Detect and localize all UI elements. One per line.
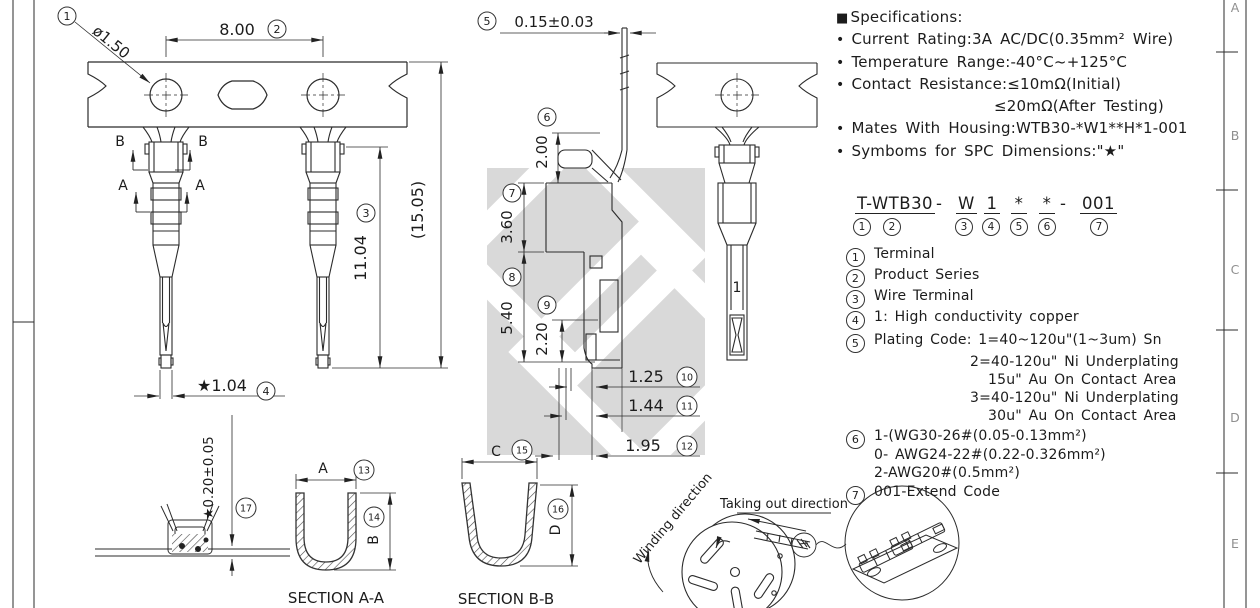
- spec-mates-housing: Mates With Housing:WTB30-*W1**H*1-001: [851, 119, 1187, 137]
- legend-item-7: 7001-Extend Code: [846, 484, 1000, 505]
- zone-letter-b: B: [1224, 128, 1246, 143]
- legend-item-3: 3Wire Terminal: [846, 288, 974, 309]
- legend-item-5-sub2: 15u" Au On Contact Area: [988, 372, 1177, 388]
- spec-line: •Temperature Range:-40°C~+125°C: [836, 51, 1226, 73]
- pn-1: 1: [984, 194, 1000, 214]
- pn-num-4: 4: [982, 218, 1000, 236]
- bullet-icon: •: [836, 144, 844, 160]
- spec-contact-resistance-2: ≤20mΩ(After Testing): [994, 97, 1164, 115]
- pn-num-3: 3: [955, 218, 973, 236]
- legend-item-4: 41: High conductivity copper: [846, 309, 1079, 330]
- pn-num-5: 5: [1010, 218, 1028, 236]
- bullet-icon: •: [836, 55, 844, 71]
- spec-current-rating: Current Rating:3A AC/DC(0.35mm² Wire): [851, 30, 1173, 48]
- pn-num-6: 6: [1038, 218, 1056, 236]
- spec-line-indented: ≤20mΩ(After Testing): [836, 95, 1226, 117]
- pn-star1: *: [1011, 194, 1027, 214]
- zone-letter-e: E: [1224, 536, 1246, 551]
- pn-w: W: [956, 194, 977, 214]
- spec-line: •Current Rating:3A AC/DC(0.35mm² Wire): [836, 28, 1226, 50]
- spec-line: •Contact Resistance:≤10mΩ(Initial): [836, 73, 1226, 95]
- pn-sep2: -: [1060, 194, 1066, 213]
- specifications-panel: ■Specifications: •Current Rating:3A AC/D…: [836, 6, 1226, 162]
- square-bullet-icon: ■: [836, 11, 848, 26]
- zone-letter-c: C: [1224, 262, 1246, 277]
- pn-sep: -: [936, 194, 942, 213]
- pn-star2: *: [1039, 194, 1055, 214]
- spec-title: Specifications:: [850, 8, 962, 26]
- spec-line: •Symboms for SPC Dimensions:"★": [836, 140, 1226, 162]
- pn-series: T-WTB30: [855, 194, 935, 214]
- spec-temp-range: Temperature Range:-40°C~+125°C: [851, 53, 1127, 71]
- legend-item-6: 61-(WG30-26#(0.05-0.13mm²): [846, 428, 1087, 449]
- spec-line: •Mates With Housing:WTB30-*W1**H*1-001: [836, 117, 1226, 139]
- legend-item-5: 5Plating Code: 1=40~120u"(1~3um) Sn: [846, 332, 1162, 353]
- legend-item-6-sub1: 0- AWG24-22#(0.22-0.326mm²): [874, 447, 1106, 463]
- legend-item-1: 1Terminal: [846, 246, 935, 267]
- text-layer: ■Specifications: •Current Rating:3A AC/D…: [0, 0, 1260, 608]
- legend-item-6-sub2: 2-AWG20#(0.5mm²): [874, 465, 1020, 481]
- bullet-icon: •: [836, 32, 844, 48]
- legend-item-5-sub4: 30u" Au On Contact Area: [988, 408, 1177, 424]
- legend-item-5-sub1: 2=40-120u" Ni Underplating: [970, 354, 1179, 370]
- pn-num-7: 7: [1090, 218, 1108, 236]
- pn-num-2: 2: [883, 218, 901, 236]
- bullet-icon: •: [836, 77, 844, 93]
- legend-item-5-sub3: 3=40-120u" Ni Underplating: [970, 390, 1179, 406]
- bullet-icon: •: [836, 121, 844, 137]
- pn-num-1: 1: [853, 218, 871, 236]
- legend-item-2: 2Product Series: [846, 267, 979, 288]
- spec-title-row: ■Specifications:: [836, 6, 1226, 28]
- zone-letter-a: A: [1224, 0, 1246, 15]
- zone-letter-d: D: [1224, 410, 1246, 425]
- drawing-sheet: 1 2 3 4 5 6 7 8 9 10 11 12 13 14 15 16 1…: [0, 0, 1260, 608]
- pn-extend: 001: [1080, 194, 1117, 214]
- spec-contact-resistance: Contact Resistance:≤10mΩ(Initial): [851, 75, 1121, 93]
- spec-spc-symbols: Symboms for SPC Dimensions:"★": [851, 142, 1124, 160]
